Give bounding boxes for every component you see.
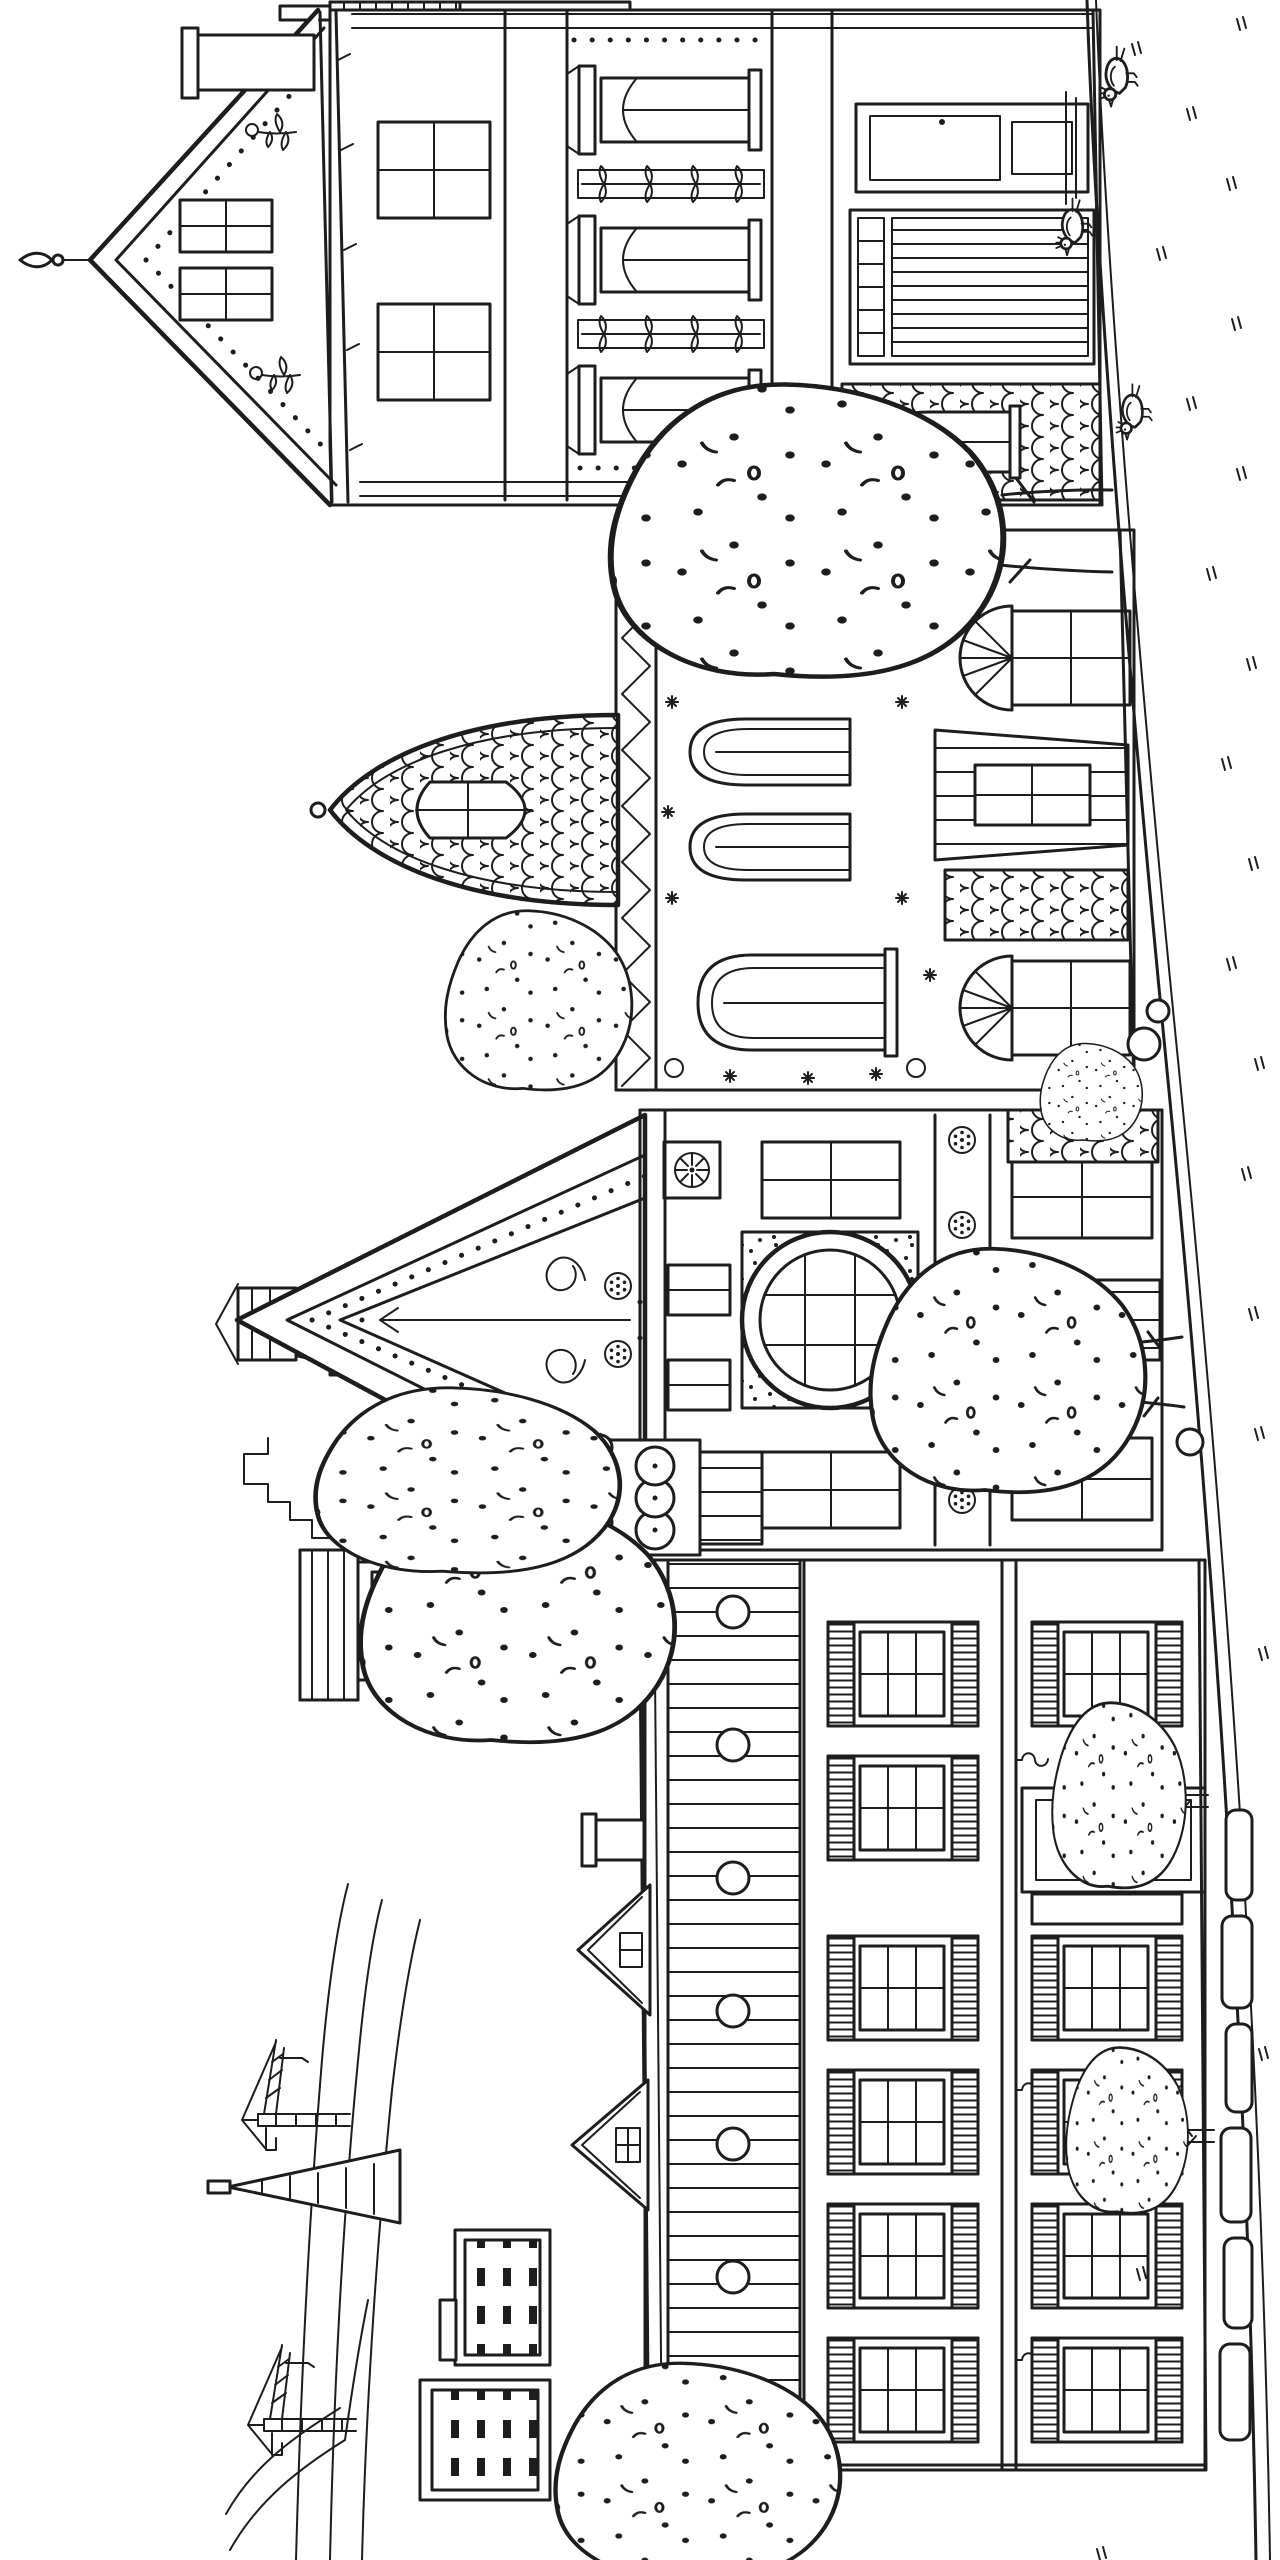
fan-window [960,956,1130,1060]
bush [1040,1043,1142,1140]
pediment-window [567,66,761,154]
fan-window [960,606,1130,710]
arched-window [698,949,897,1056]
chimney [182,28,314,98]
garage-bay [850,210,1094,364]
illustration-svg [0,0,1280,2560]
pediment-window [567,216,761,304]
house-shutters [572,1560,1206,2470]
side-panel [1032,1894,1182,1924]
bay-window [935,730,1128,860]
coloring-page [0,0,1280,2560]
porch-door [856,92,1088,204]
tree [316,1388,620,1573]
tree [445,911,632,1090]
